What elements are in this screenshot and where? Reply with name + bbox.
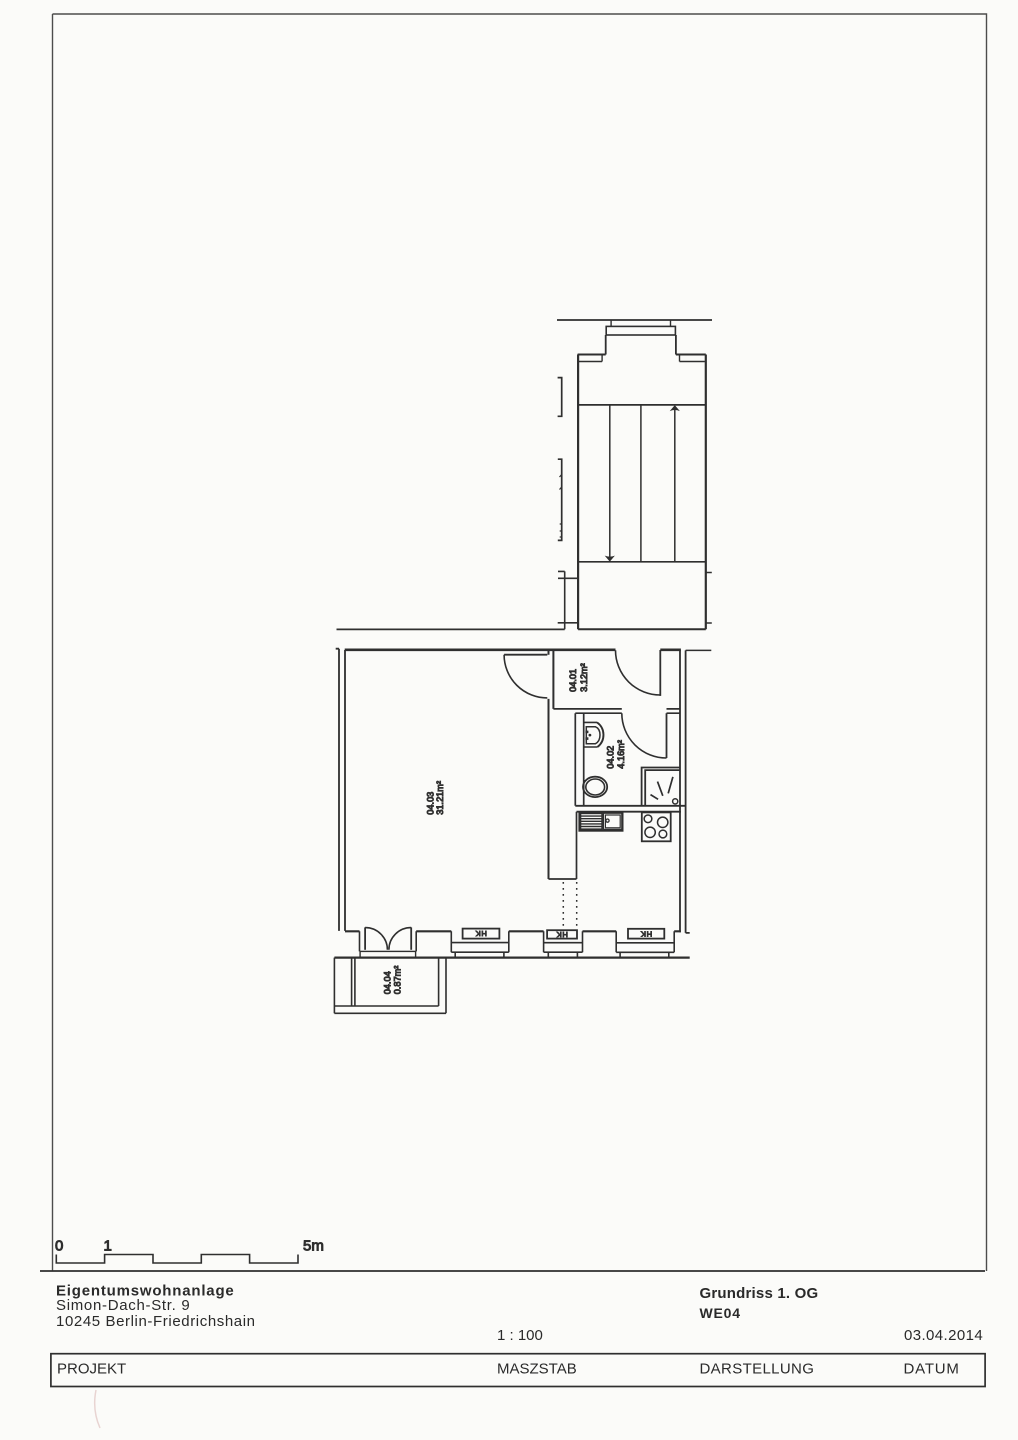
svg-text:HK: HK — [556, 930, 568, 939]
svg-text:PROJEKT: PROJEKT — [57, 1361, 126, 1378]
svg-text:Grundriss 1. OG: Grundriss 1. OG — [700, 1285, 819, 1302]
svg-text:04.02: 04.02 — [606, 746, 616, 769]
svg-text:5m: 5m — [303, 1237, 324, 1254]
svg-text:DATUM: DATUM — [904, 1361, 960, 1378]
svg-text:DARSTELLUNG: DARSTELLUNG — [700, 1361, 815, 1378]
svg-text:0.87m²: 0.87m² — [392, 966, 402, 995]
svg-text:3.12m²: 3.12m² — [579, 663, 589, 692]
svg-text:HK: HK — [640, 929, 652, 938]
svg-text:4.16m²: 4.16m² — [616, 740, 626, 769]
svg-text:04.03: 04.03 — [425, 792, 435, 815]
svg-text:MASZSTAB: MASZSTAB — [497, 1361, 577, 1378]
svg-text:WE04: WE04 — [700, 1305, 741, 1321]
svg-text:04.01: 04.01 — [568, 669, 578, 692]
svg-text:10245 Berlin-Friedrichshain: 10245 Berlin-Friedrichshain — [56, 1313, 256, 1330]
svg-text:1 : 100: 1 : 100 — [497, 1327, 543, 1344]
svg-text:HK: HK — [475, 929, 487, 938]
svg-text:Simon-Dach-Str. 9: Simon-Dach-Str. 9 — [56, 1297, 190, 1314]
svg-text:0: 0 — [55, 1237, 63, 1254]
svg-text:1: 1 — [104, 1237, 112, 1254]
svg-text:04.04: 04.04 — [382, 971, 392, 994]
svg-text:31.21m²: 31.21m² — [435, 781, 445, 815]
svg-text:03.04.2014: 03.04.2014 — [904, 1327, 983, 1344]
